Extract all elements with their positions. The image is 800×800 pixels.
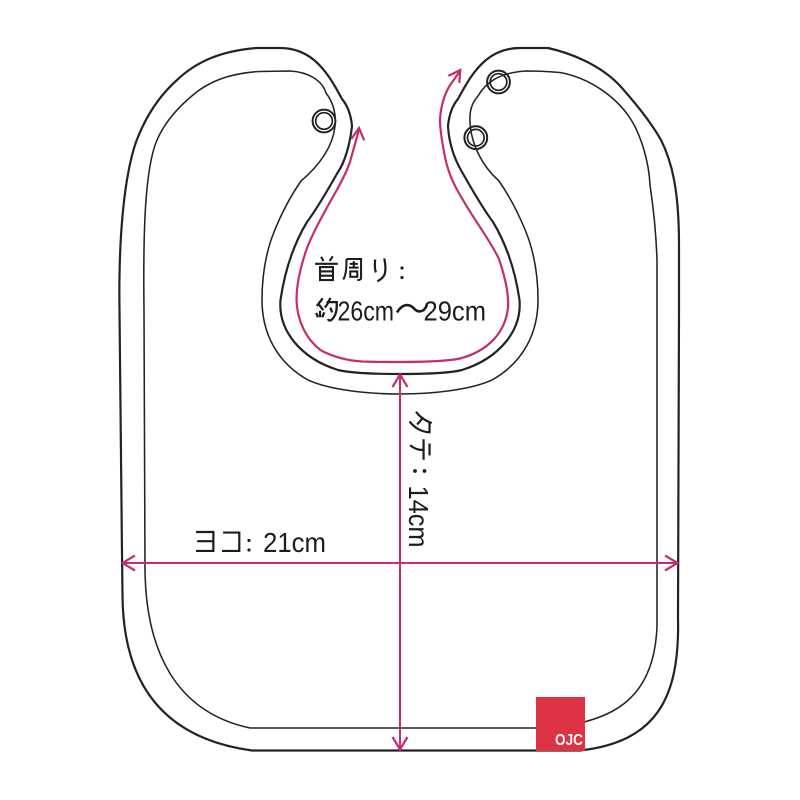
svg-text:21cm: 21cm [263, 527, 326, 558]
svg-text:29cm: 29cm [424, 296, 487, 327]
svg-text:OJC: OJC [555, 732, 583, 749]
svg-text:14cm: 14cm [403, 486, 434, 548]
svg-text:26cm: 26cm [338, 296, 395, 327]
